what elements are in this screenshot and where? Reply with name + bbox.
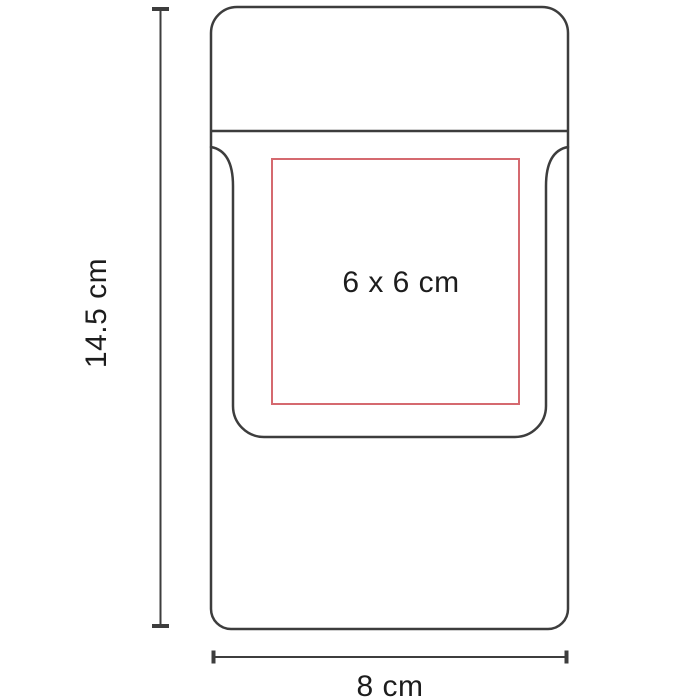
- height-dimension-line: [152, 9, 169, 626]
- product-dimension-diagram: 6 x 6 cm 14.5 cm 8 cm: [0, 0, 700, 700]
- print-area-label: 6 x 6 cm: [342, 266, 459, 300]
- width-dimension-line: [213, 651, 567, 664]
- width-dimension-label: 8 cm: [356, 670, 423, 700]
- product-outline: [211, 7, 568, 629]
- height-dimension-label: 14.5 cm: [80, 258, 114, 368]
